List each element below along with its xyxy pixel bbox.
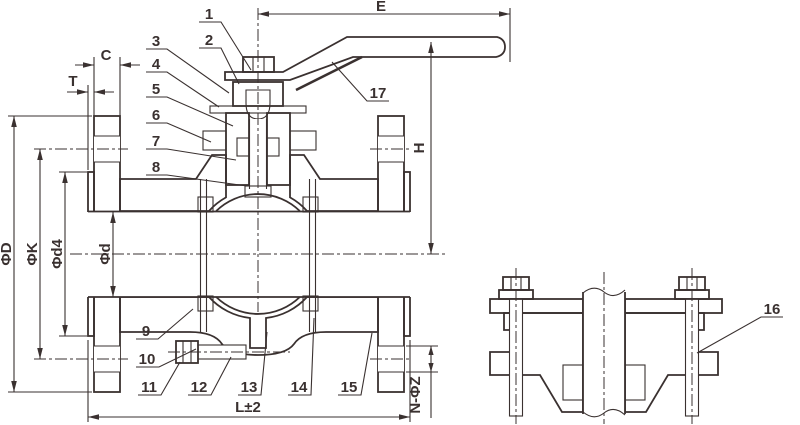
svg-text:13: 13 [241,379,258,396]
callout-9: 9 [136,309,193,340]
side-body-right [625,313,718,412]
stem-packing-left [237,138,249,156]
dim-phiK: ΦK [24,149,43,359]
svg-text:1: 1 [205,6,213,23]
callout-8: 8 [146,159,247,186]
dim-E: E [258,0,510,62]
bonnet-assembly [203,57,316,197]
callout-14: 14 [288,318,314,396]
svg-text:12: 12 [191,379,208,396]
dim-label-E: E [376,0,386,15]
svg-text:16: 16 [764,301,781,318]
svg-text:8: 8 [152,159,160,176]
svg-text:10: 10 [139,351,156,368]
dim-label-T: T [68,73,77,90]
body-upper-left [120,155,226,211]
dim-label-phiD: ΦD [0,242,15,265]
dim-C: C [75,47,140,116]
body-lower [120,297,378,355]
dim-label-C: C [101,47,112,64]
callout-13: 13 [238,332,267,396]
dim-H: H [411,42,434,254]
dim-NZ: N-ΦZ [406,346,438,418]
svg-text:11: 11 [141,379,157,396]
ball-valve-engineering-drawing: E H C T ΦD ΦK Φd4 [0,0,800,425]
side-top-bar-right [625,299,722,313]
svg-text:7: 7 [152,133,160,150]
callout-15: 15 [338,333,372,396]
side-top-bar-left [490,299,583,313]
side-section-view [490,268,722,424]
stem-packing-right [267,138,279,156]
main-section-view [34,8,505,392]
svg-text:17: 17 [370,85,387,102]
dim-label-phid: Φd [97,243,114,264]
dim-label-NZ: N-ΦZ [407,376,424,413]
dim-label-L: L±2 [235,399,261,416]
side-seal-left [563,365,583,400]
svg-text:2: 2 [205,32,213,49]
dim-label-H: H [411,143,428,154]
callout-10: 10 [136,349,196,368]
callout-7: 7 [146,133,236,160]
svg-text:4: 4 [152,56,161,73]
dim-label-phid4: Φd4 [49,238,66,268]
centerlines [34,8,448,359]
dim-label-phiK: ΦK [24,242,41,265]
svg-text:15: 15 [341,379,358,396]
svg-text:14: 14 [291,379,308,396]
callout-16: 16 [697,301,783,353]
valve-section-svg: E H C T ΦD ΦK Φd4 [0,0,800,425]
bonnet-flange-wing-right [290,131,316,150]
svg-text:9: 9 [142,323,150,340]
side-seal-right [625,365,645,400]
svg-text:6: 6 [152,107,160,124]
svg-text:3: 3 [152,33,160,50]
side-body-left [490,313,583,412]
svg-text:5: 5 [152,81,160,98]
